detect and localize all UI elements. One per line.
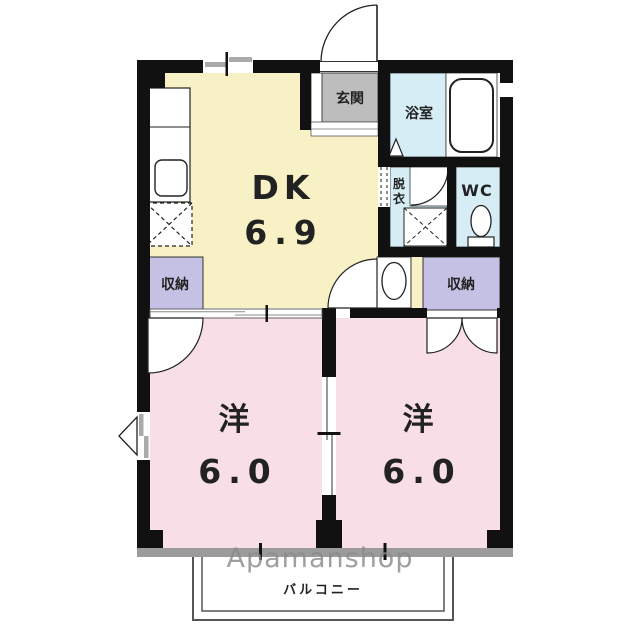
- wash-basin-unit: [377, 257, 411, 308]
- bath-window-notch: [500, 83, 513, 97]
- front-door-arc: [321, 5, 377, 62]
- washing-machine-space: [404, 208, 447, 246]
- shoe-cabinet: [311, 73, 322, 127]
- western-left-area: 6.0: [198, 452, 277, 491]
- refrigerator-space: [146, 203, 192, 246]
- wall-entrance-bath: [378, 73, 390, 157]
- wall-corner-bl: [137, 530, 163, 548]
- middle-sliding-gap: [322, 377, 336, 495]
- kitchen-unit: [146, 88, 192, 246]
- wall-middle-upper: [322, 308, 336, 377]
- wall-dressing-wc: [447, 167, 456, 247]
- basin-bowl: [382, 263, 406, 300]
- left-window-sash2: [144, 436, 149, 458]
- kitchen-sink: [155, 160, 187, 196]
- wall-left: [137, 60, 150, 548]
- wall-top-right: [378, 60, 513, 73]
- dk-room-sliding-band: [150, 309, 322, 318]
- floor-plan-drawing: バルコニー DK 6.9 洋 6.0 洋 6.0 玄関 浴室 脱 衣 WC 収納…: [0, 0, 640, 627]
- top-window-sash2: [229, 57, 252, 62]
- dk-area: 6.9: [244, 213, 323, 252]
- storage-right-label: 収納: [447, 276, 475, 293]
- left-window-marker: [119, 417, 137, 455]
- apamanshop-watermark: Apamanshop: [227, 543, 414, 574]
- wall-entrance-left: [300, 73, 311, 130]
- toilet-label: WC: [461, 181, 492, 200]
- dk-floor-strip: [411, 257, 423, 308]
- storage-left-label: 収納: [161, 276, 189, 293]
- dressing-label-1: 脱: [393, 176, 405, 191]
- toilet-tank: [468, 237, 494, 247]
- accordion-door-gap: [378, 167, 390, 207]
- western-right-label: 洋: [403, 402, 434, 438]
- left-window-sash1: [139, 414, 144, 436]
- western-right-area: 6.0: [382, 452, 461, 491]
- wall-right: [500, 60, 513, 548]
- top-window-tick: [226, 52, 229, 76]
- dk-label: DK: [252, 168, 315, 207]
- entrance-label: 玄関: [336, 90, 364, 107]
- top-window-sash1: [205, 62, 228, 67]
- wall-below-bath: [378, 157, 513, 167]
- dk-room-sliding-tick: [266, 305, 269, 322]
- dressing-label-2: 衣: [393, 191, 405, 206]
- wall-rooms-top-a: [350, 308, 427, 318]
- western-left-label: 洋: [219, 402, 250, 438]
- wall-rooms-top-b: [497, 308, 513, 318]
- wall-below-wc: [378, 247, 513, 257]
- middle-sliding-tick: [318, 432, 341, 435]
- floor-plan-canvas: バルコニー DK 6.9 洋 6.0 洋 6.0 玄関 浴室 脱 衣 WC 収納…: [0, 0, 640, 627]
- balcony-label: バルコニー: [283, 583, 363, 598]
- toilet-bowl: [471, 206, 491, 237]
- bathtub: [450, 79, 493, 152]
- wall-corner-br: [487, 530, 513, 548]
- bathroom-label: 浴室: [405, 105, 433, 122]
